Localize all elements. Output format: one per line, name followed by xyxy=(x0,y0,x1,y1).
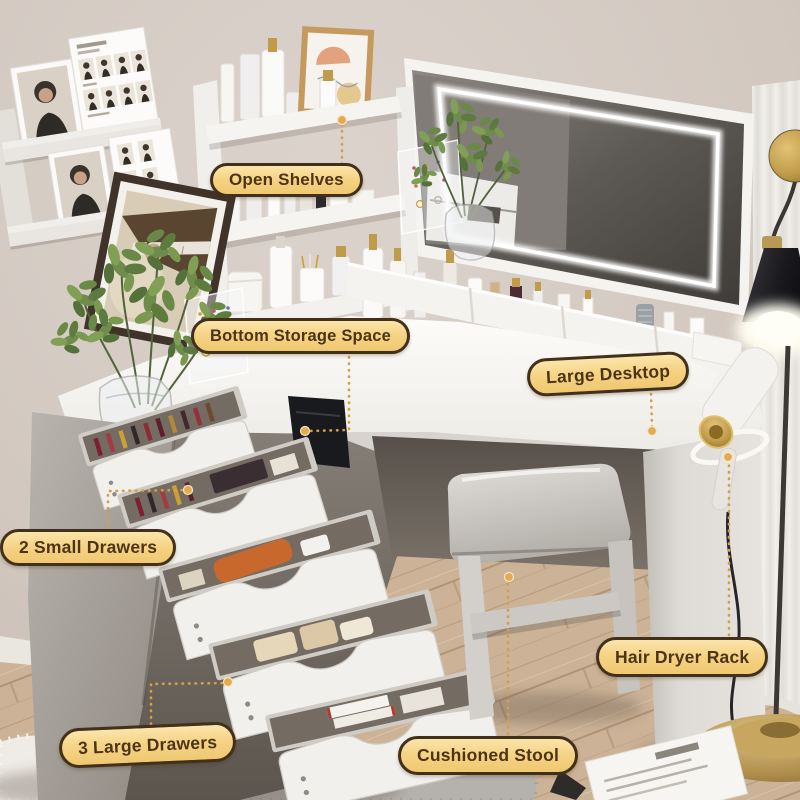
scene-illustration xyxy=(0,0,800,800)
glass-vase xyxy=(445,204,494,260)
callout-label: Bottom Storage Space xyxy=(210,327,391,346)
callout-cushioned-stool: Cushioned Stool xyxy=(398,736,578,775)
callout-bottom-storage-space: Bottom Storage Space xyxy=(191,318,410,354)
callout-3-large-drawers: 3 Large Drawers xyxy=(58,721,237,769)
photo-magazine xyxy=(68,27,158,134)
callout-label: Large Desktop xyxy=(546,360,671,387)
callout-label: 3 Large Drawers xyxy=(78,731,218,758)
annotated-product-image: Open Shelves Bottom Storage Space Large … xyxy=(0,0,800,800)
desk-side-panel xyxy=(643,430,766,762)
callout-label: Cushioned Stool xyxy=(417,745,559,766)
callout-label: Hair Dryer Rack xyxy=(615,647,749,668)
callout-open-shelves: Open Shelves xyxy=(210,163,363,197)
callout-2-small-drawers: 2 Small Drawers xyxy=(0,529,176,566)
callout-label: 2 Small Drawers xyxy=(19,537,157,558)
callout-label: Open Shelves xyxy=(229,170,344,190)
callout-hair-dryer-rack: Hair Dryer Rack xyxy=(596,637,768,677)
